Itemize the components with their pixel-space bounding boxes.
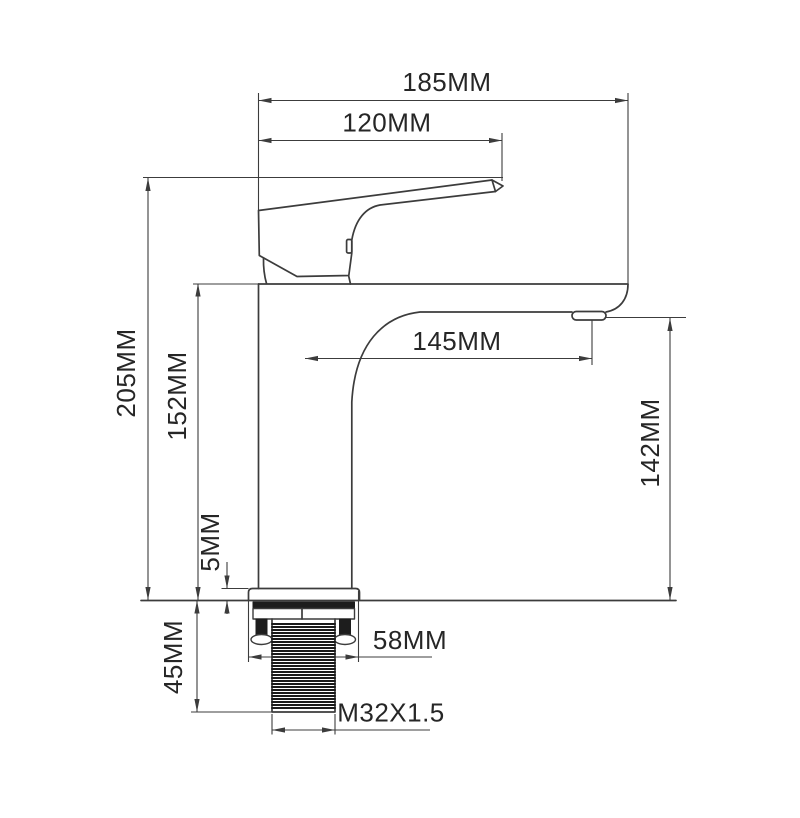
- handle-neck-foot-line: [349, 277, 351, 285]
- arrowhead: [249, 654, 262, 659]
- arrowhead: [194, 601, 199, 614]
- arrowhead: [259, 138, 272, 143]
- dim-deck-plate-height-5mm: [222, 562, 249, 614]
- arrowhead: [667, 318, 672, 331]
- arrowhead: [272, 727, 285, 732]
- thread-lines: [272, 624, 335, 708]
- base-plate-outline: [249, 589, 360, 601]
- faucet-handle-outline: [259, 180, 504, 277]
- left-mounting-bolt: [256, 619, 267, 636]
- right-mounting-bolt: [340, 619, 351, 636]
- dim-label-handle-reach: 120MM: [342, 108, 431, 138]
- escutcheon-crease-line: [263, 258, 266, 284]
- dim-label-deck-plate-height: 5MM: [195, 512, 225, 571]
- arrowhead: [615, 98, 628, 103]
- dim-label-base-width: 58MM: [373, 625, 447, 655]
- arrowhead: [305, 356, 318, 361]
- faucet-dimension-drawing: 185MM 120MM 145MM 205MM 152MM 5MM 45MM 1…: [0, 0, 800, 818]
- arrowhead: [195, 284, 200, 297]
- left-bolt-washer: [251, 635, 272, 645]
- gasket-band: [253, 602, 355, 609]
- arrowhead: [224, 601, 229, 614]
- arrowhead: [322, 727, 335, 732]
- aerator-disc: [572, 312, 606, 321]
- arrowhead: [224, 576, 229, 589]
- dim-overall-depth-185mm: [259, 93, 629, 283]
- dim-label-spout-reach: 145MM: [412, 326, 501, 356]
- technical-drawing-page: { "drawing": { "background": "#ffffff", …: [0, 0, 800, 818]
- dim-label-overall-depth: 185MM: [402, 67, 491, 97]
- arrowhead: [346, 654, 359, 659]
- arrowhead: [145, 587, 150, 600]
- dim-label-spout-outlet-height: 142MM: [635, 398, 665, 487]
- drawing-canvas: 185MM 120MM 145MM 205MM 152MM 5MM 45MM 1…: [0, 0, 800, 818]
- arrowhead: [194, 699, 199, 712]
- right-bolt-washer: [335, 635, 356, 645]
- arrowhead: [489, 138, 502, 143]
- dim-label-overall-height: 205MM: [111, 328, 141, 417]
- dim-handle-reach-120mm: [259, 133, 503, 181]
- arrowhead: [667, 587, 672, 600]
- arrowhead: [145, 178, 150, 191]
- arrowhead: [259, 98, 272, 103]
- arrowhead: [579, 356, 592, 361]
- body-right-corner-curve: [606, 284, 628, 312]
- handle-neck-tab: [347, 240, 352, 254]
- dim-label-under-deck-depth: 45MM: [158, 620, 188, 694]
- dimension-labels: 185MM 120MM 145MM 205MM 152MM 5MM 45MM 1…: [111, 67, 665, 728]
- dim-label-body-top-height: 152MM: [162, 351, 192, 440]
- mounting-flange: [253, 609, 355, 620]
- dim-label-thread-spec: M32X1.5: [337, 698, 445, 728]
- arrowhead: [195, 587, 200, 600]
